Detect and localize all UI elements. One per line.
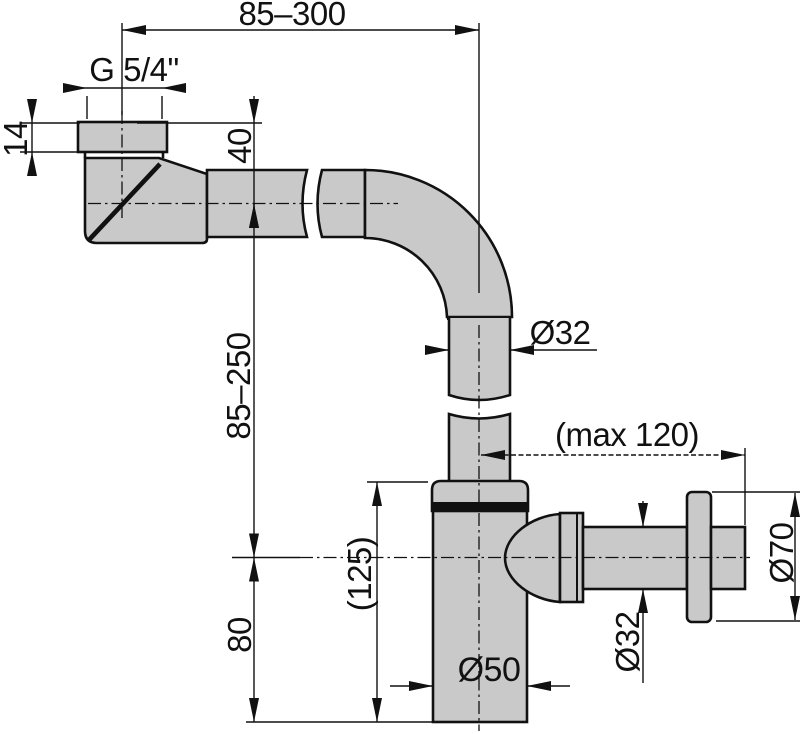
label-riser-diameter: Ø32 xyxy=(530,314,591,351)
label-body-diameter: Ø50 xyxy=(458,651,521,689)
label-outlet-diameter: Ø32 xyxy=(609,612,646,673)
label-thread-size: G 5/4" xyxy=(89,51,178,88)
trap-collar-band xyxy=(431,502,529,511)
label-inlet-drop: 40 xyxy=(221,128,258,164)
label-riser-span: 85–250 xyxy=(220,332,257,439)
label-nut-height: 14 xyxy=(0,121,34,157)
label-flange-diameter: Ø70 xyxy=(763,522,800,583)
technical-drawing: 85–300 G 5/4" 14 40 85–250 80 (125) Ø32 … xyxy=(0,0,800,734)
label-wall-distance: (max 120) xyxy=(555,416,699,453)
label-top-span: 85–300 xyxy=(238,0,345,32)
drawing-root: 85–300 G 5/4" 14 40 85–250 80 (125) Ø32 … xyxy=(0,0,800,731)
label-trap-height: (125) xyxy=(341,537,378,612)
inlet-elbow-body xyxy=(85,158,207,243)
elbow-bend-90 xyxy=(365,170,512,317)
label-lower-height: 80 xyxy=(221,617,258,653)
